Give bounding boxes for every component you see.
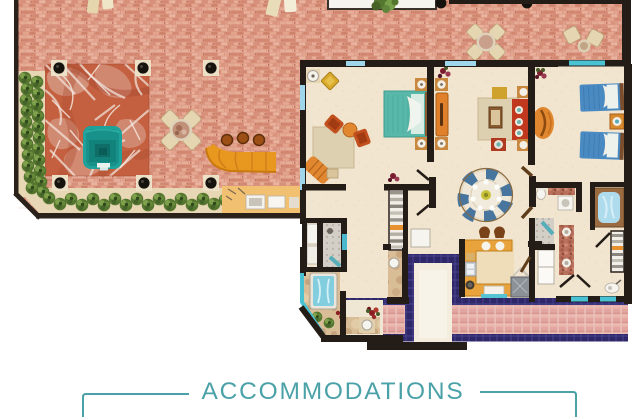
svg-text:ACCOMMODATIONS: ACCOMMODATIONS: [202, 378, 465, 405]
